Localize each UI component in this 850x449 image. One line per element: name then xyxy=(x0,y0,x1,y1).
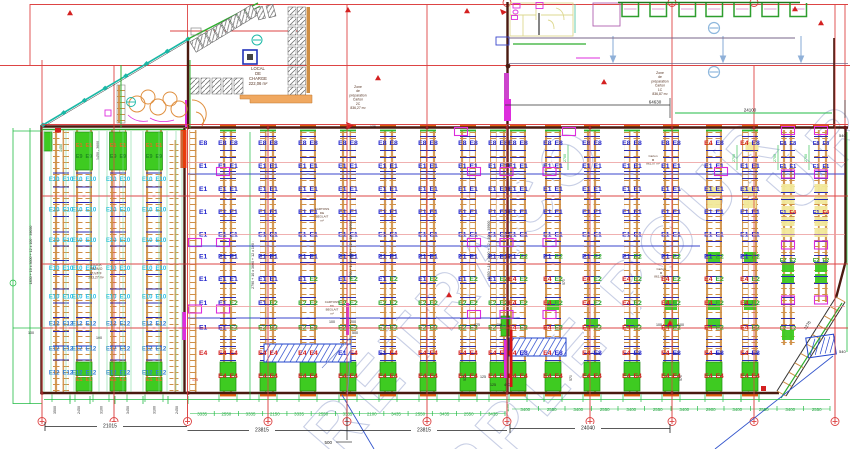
svg-text:1450: 1450 xyxy=(59,144,63,152)
svg-text:E1: E1 xyxy=(338,186,347,193)
svg-text:E1: E1 xyxy=(520,232,529,239)
svg-text:E8: E8 xyxy=(508,140,517,147)
svg-text:E1: E1 xyxy=(350,209,359,216)
svg-text:E4: E4 xyxy=(508,276,517,283)
svg-text:3435: 3435 xyxy=(440,412,450,417)
svg-text:E12: E12 xyxy=(156,371,167,377)
svg-text:E1: E1 xyxy=(673,186,682,193)
svg-text:E4: E4 xyxy=(199,350,208,357)
svg-text:2550: 2550 xyxy=(464,412,474,417)
svg-text:E10: E10 xyxy=(120,177,131,183)
svg-text:E10: E10 xyxy=(120,295,131,301)
svg-text:E1: E1 xyxy=(740,163,749,170)
svg-text:E1: E1 xyxy=(270,209,279,216)
svg-text:E1: E1 xyxy=(543,163,552,170)
svg-text:E12: E12 xyxy=(106,322,117,328)
svg-text:570: 570 xyxy=(569,375,573,381)
svg-text:540: 540 xyxy=(839,349,846,354)
svg-text:E2: E2 xyxy=(752,276,761,283)
svg-text:E4: E4 xyxy=(661,373,670,380)
svg-text:E1: E1 xyxy=(418,186,427,193)
svg-text:E4: E4 xyxy=(740,300,749,307)
svg-text:E12: E12 xyxy=(120,371,131,377)
svg-text:E10: E10 xyxy=(49,208,60,214)
svg-text:E8: E8 xyxy=(230,140,239,147)
svg-text:1850 + 10 x 3600 + 12 x 100 :: 1850 + 10 x 3600 + 12 x 100 : 39900 xyxy=(487,221,491,280)
svg-text:E2: E2 xyxy=(270,300,279,307)
svg-text:E1: E1 xyxy=(508,232,517,239)
svg-text:E8: E8 xyxy=(790,141,797,147)
svg-text:m²: m² xyxy=(330,311,334,315)
svg-text:2450: 2450 xyxy=(77,406,81,414)
svg-text:E1: E1 xyxy=(582,254,591,261)
svg-text:E1: E1 xyxy=(661,254,670,261)
svg-text:E4: E4 xyxy=(488,350,497,357)
svg-text:3400: 3400 xyxy=(732,407,742,412)
svg-text:E12: E12 xyxy=(120,347,131,353)
svg-text:m²: m² xyxy=(320,218,324,222)
svg-text:E1: E1 xyxy=(594,163,603,170)
svg-text:E10: E10 xyxy=(72,266,83,272)
svg-text:175: 175 xyxy=(192,378,198,382)
svg-text:E2: E2 xyxy=(470,300,479,307)
svg-text:E10: E10 xyxy=(156,266,167,272)
svg-text:E2: E2 xyxy=(634,276,643,283)
svg-text:E4: E4 xyxy=(508,300,517,307)
svg-text:E8: E8 xyxy=(813,141,820,147)
svg-text:E2: E2 xyxy=(716,254,725,261)
svg-text:836,87 m²: 836,87 m² xyxy=(652,92,668,96)
svg-text:E2: E2 xyxy=(230,300,239,307)
svg-text:E8: E8 xyxy=(378,140,387,147)
svg-text:E1: E1 xyxy=(378,276,387,283)
svg-text:E9: E9 xyxy=(76,154,83,160)
svg-text:E1: E1 xyxy=(622,254,631,261)
svg-text:E4: E4 xyxy=(740,140,749,147)
svg-text:E2: E2 xyxy=(488,300,497,307)
svg-text:E1: E1 xyxy=(218,276,227,283)
svg-text:1850 + 10 x 3600 + 12 x 100 :: 1850 + 10 x 3600 + 12 x 100 : 39050 xyxy=(29,226,33,285)
svg-text:E4: E4 xyxy=(594,373,603,380)
svg-text:E1: E1 xyxy=(218,186,227,193)
svg-text:E4: E4 xyxy=(310,350,319,357)
svg-text:222,06 m²: 222,06 m² xyxy=(249,81,268,86)
svg-text:E1: E1 xyxy=(508,254,517,261)
svg-text:3400: 3400 xyxy=(520,407,530,412)
svg-text:E1: E1 xyxy=(310,254,319,261)
svg-text:3400: 3400 xyxy=(679,407,689,412)
svg-text:E1: E1 xyxy=(76,143,83,149)
svg-text:E1: E1 xyxy=(298,186,307,193)
svg-text:E10: E10 xyxy=(156,238,167,244)
svg-text:E1: E1 xyxy=(790,164,797,170)
svg-text:E4: E4 xyxy=(622,300,631,307)
svg-text:E12: E12 xyxy=(49,371,60,377)
svg-text:E12: E12 xyxy=(49,347,60,353)
svg-text:E10: E10 xyxy=(49,266,60,272)
svg-text:E8: E8 xyxy=(673,350,682,357)
svg-text:E2: E2 xyxy=(310,300,319,307)
svg-text:2550: 2550 xyxy=(600,407,610,412)
svg-text:E1: E1 xyxy=(555,232,564,239)
svg-text:E1: E1 xyxy=(488,209,497,216)
svg-text:E9: E9 xyxy=(86,154,93,160)
svg-text:E4: E4 xyxy=(230,350,239,357)
svg-text:E1: E1 xyxy=(218,163,227,170)
svg-text:E10: E10 xyxy=(142,238,153,244)
svg-text:E4: E4 xyxy=(752,373,761,380)
svg-text:E8: E8 xyxy=(622,140,631,147)
svg-text:E4: E4 xyxy=(661,300,670,307)
svg-text:E10: E10 xyxy=(106,208,117,214)
svg-text:E10: E10 xyxy=(142,295,153,301)
svg-text:3435: 3435 xyxy=(488,412,498,417)
svg-text:E1: E1 xyxy=(350,163,359,170)
svg-text:E12: E12 xyxy=(142,347,153,353)
svg-text:E2: E2 xyxy=(470,276,479,283)
svg-text:E10: E10 xyxy=(86,238,97,244)
svg-text:E1: E1 xyxy=(76,377,83,383)
svg-text:E1: E1 xyxy=(86,143,93,149)
svg-text:E1: E1 xyxy=(458,209,467,216)
svg-text:E1: E1 xyxy=(458,232,467,239)
svg-text:E1: E1 xyxy=(378,209,387,216)
svg-text:E1: E1 xyxy=(520,209,529,216)
svg-text:E12: E12 xyxy=(156,322,167,328)
svg-text:E9: E9 xyxy=(146,154,153,160)
svg-text:E1: E1 xyxy=(390,232,399,239)
svg-text:E1: E1 xyxy=(199,276,208,283)
svg-text:E1: E1 xyxy=(470,163,479,170)
svg-text:E2: E2 xyxy=(790,258,797,264)
svg-text:E10: E10 xyxy=(106,295,117,301)
svg-text:E10: E10 xyxy=(49,238,60,244)
svg-text:E10: E10 xyxy=(86,295,97,301)
svg-text:E1: E1 xyxy=(622,186,631,193)
svg-text:E12: E12 xyxy=(72,322,83,328)
svg-text:E1: E1 xyxy=(338,209,347,216)
svg-text:490: 490 xyxy=(496,323,502,327)
svg-text:E10: E10 xyxy=(106,177,117,183)
svg-text:E1: E1 xyxy=(430,232,439,239)
svg-text:E4: E4 xyxy=(543,276,552,283)
svg-text:E4: E4 xyxy=(634,373,643,380)
svg-text:E2: E2 xyxy=(594,254,603,261)
svg-text:E1: E1 xyxy=(458,276,467,283)
svg-text:E4: E4 xyxy=(520,373,529,380)
svg-text:E1: E1 xyxy=(716,209,725,216)
svg-text:21015: 21015 xyxy=(103,424,117,430)
svg-text:E10: E10 xyxy=(142,208,153,214)
svg-text:E2: E2 xyxy=(780,258,787,264)
svg-text:500: 500 xyxy=(324,440,332,445)
svg-text:E1: E1 xyxy=(430,186,439,193)
svg-text:E10: E10 xyxy=(86,177,97,183)
svg-text:E4: E4 xyxy=(338,373,347,380)
svg-text:E1: E1 xyxy=(110,143,117,149)
svg-text:E12: E12 xyxy=(106,371,117,377)
svg-text:E12: E12 xyxy=(86,347,97,353)
svg-text:540: 540 xyxy=(839,133,846,138)
svg-text:E2: E2 xyxy=(310,276,319,283)
svg-text:E1: E1 xyxy=(338,350,347,357)
svg-text:2900: 2900 xyxy=(706,407,716,412)
svg-text:E8: E8 xyxy=(594,350,603,357)
svg-text:E1: E1 xyxy=(470,232,479,239)
svg-text:E12: E12 xyxy=(142,371,153,377)
svg-text:E8: E8 xyxy=(661,140,670,147)
svg-text:E2: E2 xyxy=(813,258,820,264)
svg-text:E2: E2 xyxy=(634,300,643,307)
svg-text:E2: E2 xyxy=(594,300,603,307)
svg-text:E2: E2 xyxy=(555,300,564,307)
svg-text:E2: E2 xyxy=(520,276,529,283)
svg-text:E1: E1 xyxy=(230,209,239,216)
svg-text:E2: E2 xyxy=(298,300,307,307)
svg-text:E1: E1 xyxy=(716,186,725,193)
svg-text:3100: 3100 xyxy=(100,406,104,414)
svg-text:E8: E8 xyxy=(752,350,761,357)
svg-text:E4: E4 xyxy=(582,276,591,283)
svg-text:E1: E1 xyxy=(258,186,267,193)
svg-text:E1: E1 xyxy=(634,209,643,216)
svg-text:E1: E1 xyxy=(258,209,267,216)
svg-text:E1: E1 xyxy=(418,163,427,170)
svg-text:E2: E2 xyxy=(390,300,399,307)
svg-text:E1: E1 xyxy=(752,209,761,216)
svg-text:E2: E2 xyxy=(390,276,399,283)
svg-text:E1: E1 xyxy=(673,209,682,216)
svg-text:E10: E10 xyxy=(72,208,83,214)
svg-text:E1: E1 xyxy=(813,164,820,170)
svg-text:23815: 23815 xyxy=(255,428,269,434)
svg-text:E4: E4 xyxy=(740,373,749,380)
svg-text:E10: E10 xyxy=(120,208,131,214)
svg-text:570: 570 xyxy=(463,375,467,381)
svg-text:E2: E2 xyxy=(752,254,761,261)
svg-text:E1: E1 xyxy=(594,209,603,216)
svg-text:E1: E1 xyxy=(199,186,208,193)
svg-text:E10: E10 xyxy=(156,208,167,214)
svg-text:E8: E8 xyxy=(634,140,643,147)
svg-text:E4: E4 xyxy=(790,210,798,216)
svg-text:E8: E8 xyxy=(594,140,603,147)
svg-text:E1: E1 xyxy=(594,186,603,193)
svg-text:E4: E4 xyxy=(823,210,831,216)
svg-text:E4: E4 xyxy=(622,373,631,380)
svg-text:E1: E1 xyxy=(634,186,643,193)
svg-text:E1: E1 xyxy=(270,232,279,239)
svg-text:E4: E4 xyxy=(661,350,670,357)
svg-text:E1: E1 xyxy=(520,163,529,170)
svg-text:E4: E4 xyxy=(310,373,319,380)
svg-text:E12: E12 xyxy=(86,371,97,377)
svg-text:E8: E8 xyxy=(488,140,497,147)
svg-text:E8: E8 xyxy=(390,140,399,147)
svg-text:E12: E12 xyxy=(106,347,117,353)
svg-text:E1: E1 xyxy=(716,163,725,170)
svg-text:E1: E1 xyxy=(146,377,153,383)
svg-text:E4: E4 xyxy=(298,373,307,380)
svg-text:E10: E10 xyxy=(72,238,83,244)
svg-text:E1: E1 xyxy=(298,232,307,239)
svg-text:E4: E4 xyxy=(218,350,227,357)
svg-text:E1: E1 xyxy=(258,163,267,170)
svg-text:E12: E12 xyxy=(72,371,83,377)
svg-text:E4: E4 xyxy=(418,350,427,357)
svg-text:E4: E4 xyxy=(582,300,591,307)
svg-text:E10: E10 xyxy=(106,266,117,272)
svg-text:E1: E1 xyxy=(418,254,427,261)
svg-text:E1: E1 xyxy=(298,209,307,216)
svg-text:E1: E1 xyxy=(716,232,725,239)
svg-text:100: 100 xyxy=(329,320,335,324)
svg-text:E1: E1 xyxy=(823,164,830,170)
svg-text:E12: E12 xyxy=(142,322,153,328)
svg-text:E4: E4 xyxy=(298,350,307,357)
svg-text:E8: E8 xyxy=(582,140,591,147)
svg-text:E1: E1 xyxy=(555,209,564,216)
svg-text:E4: E4 xyxy=(350,373,359,380)
svg-text:64630: 64630 xyxy=(649,100,662,105)
svg-text:E4: E4 xyxy=(430,350,439,357)
svg-text:E1: E1 xyxy=(582,232,591,239)
svg-text:E1: E1 xyxy=(661,232,670,239)
svg-text:E1: E1 xyxy=(780,210,787,216)
svg-text:E1: E1 xyxy=(378,254,387,261)
svg-text:E1: E1 xyxy=(555,186,564,193)
svg-text:E4: E4 xyxy=(390,373,399,380)
svg-text:E1: E1 xyxy=(258,254,267,261)
svg-text:E1: E1 xyxy=(230,254,239,261)
svg-text:E10: E10 xyxy=(156,295,167,301)
svg-text:2100: 2100 xyxy=(367,412,377,417)
svg-text:E4: E4 xyxy=(543,300,552,307)
svg-text:E8: E8 xyxy=(634,350,643,357)
svg-text:E1: E1 xyxy=(270,186,279,193)
svg-text:E1: E1 xyxy=(704,232,713,239)
svg-text:E1: E1 xyxy=(86,377,93,383)
svg-text:E9: E9 xyxy=(110,154,117,160)
svg-text:23815: 23815 xyxy=(417,428,431,434)
svg-text:E2: E2 xyxy=(780,326,787,332)
svg-text:E1: E1 xyxy=(582,209,591,216)
svg-text:E10: E10 xyxy=(49,295,60,301)
svg-text:E8: E8 xyxy=(470,140,479,147)
svg-text:E1: E1 xyxy=(430,209,439,216)
svg-text:E4: E4 xyxy=(740,276,749,283)
svg-text:E4: E4 xyxy=(704,300,713,307)
svg-text:E8: E8 xyxy=(716,140,725,147)
svg-text:E2: E2 xyxy=(430,300,439,307)
svg-text:3435: 3435 xyxy=(391,412,401,417)
svg-text:E1: E1 xyxy=(673,163,682,170)
svg-text:125: 125 xyxy=(370,125,376,129)
svg-text:2550: 2550 xyxy=(759,407,769,412)
svg-text:2550: 2550 xyxy=(812,407,822,412)
svg-text:3400: 3400 xyxy=(573,407,583,412)
svg-text:E10: E10 xyxy=(156,177,167,183)
svg-text:2550: 2550 xyxy=(653,407,663,412)
svg-text:E1: E1 xyxy=(740,186,749,193)
svg-text:E2: E2 xyxy=(716,300,725,307)
svg-text:E2: E2 xyxy=(634,254,643,261)
svg-text:E8: E8 xyxy=(430,140,439,147)
svg-text:E10: E10 xyxy=(72,295,83,301)
svg-text:E1: E1 xyxy=(430,254,439,261)
svg-text:E2: E2 xyxy=(555,254,564,261)
svg-text:E8: E8 xyxy=(555,350,564,357)
svg-text:E4: E4 xyxy=(543,350,552,357)
svg-text:E1: E1 xyxy=(780,164,787,170)
svg-text:E10: E10 xyxy=(142,177,153,183)
svg-text:E1: E1 xyxy=(622,232,631,239)
svg-text:E1: E1 xyxy=(298,254,307,261)
svg-text:E1: E1 xyxy=(458,254,467,261)
svg-text:E12: E12 xyxy=(86,322,97,328)
svg-text:E2: E2 xyxy=(378,300,387,307)
svg-text:E1: E1 xyxy=(218,209,227,216)
svg-text:E1: E1 xyxy=(258,300,267,307)
svg-text:E2: E2 xyxy=(673,300,682,307)
svg-text:3335: 3335 xyxy=(343,412,353,417)
svg-text:570: 570 xyxy=(679,375,683,381)
svg-text:E1: E1 xyxy=(310,186,319,193)
svg-text:E1: E1 xyxy=(418,209,427,216)
svg-text:E1: E1 xyxy=(488,163,497,170)
svg-text:E1: E1 xyxy=(661,209,670,216)
svg-text:E1: E1 xyxy=(622,163,631,170)
svg-text:E1: E1 xyxy=(218,254,227,261)
svg-text:E2: E2 xyxy=(458,300,467,307)
svg-text:E1: E1 xyxy=(230,186,239,193)
svg-text:E1: E1 xyxy=(270,254,279,261)
svg-text:E8: E8 xyxy=(218,140,227,147)
svg-text:E1: E1 xyxy=(199,209,208,216)
svg-text:E4: E4 xyxy=(582,373,591,380)
svg-text:E1: E1 xyxy=(582,163,591,170)
svg-text:E2: E2 xyxy=(823,258,830,264)
svg-text:E8: E8 xyxy=(350,140,359,147)
svg-text:3450: 3450 xyxy=(126,406,130,414)
svg-text:E8: E8 xyxy=(199,140,208,147)
svg-text:E1: E1 xyxy=(338,276,347,283)
svg-text:E8: E8 xyxy=(543,140,552,147)
svg-text:E4: E4 xyxy=(258,350,267,357)
svg-text:E4: E4 xyxy=(704,350,713,357)
svg-text:E1: E1 xyxy=(634,163,643,170)
svg-text:E1: E1 xyxy=(310,163,319,170)
svg-text:E1: E1 xyxy=(338,254,347,261)
svg-text:125: 125 xyxy=(474,323,480,327)
svg-text:E4: E4 xyxy=(582,350,591,357)
svg-text:E1: E1 xyxy=(390,163,399,170)
svg-text:E1: E1 xyxy=(230,276,239,283)
svg-text:E2: E2 xyxy=(673,276,682,283)
svg-text:E2: E2 xyxy=(520,300,529,307)
svg-text:E1: E1 xyxy=(543,209,552,216)
svg-text:E1: E1 xyxy=(458,163,467,170)
svg-text:E1: E1 xyxy=(543,232,552,239)
svg-text:E1: E1 xyxy=(594,232,603,239)
svg-text:E1: E1 xyxy=(270,163,279,170)
svg-text:E4: E4 xyxy=(740,350,749,357)
svg-text:E8: E8 xyxy=(716,350,725,357)
svg-text:E1: E1 xyxy=(634,232,643,239)
svg-text:E1: E1 xyxy=(430,163,439,170)
svg-text:E12: E12 xyxy=(156,347,167,353)
svg-text:E1: E1 xyxy=(740,209,749,216)
